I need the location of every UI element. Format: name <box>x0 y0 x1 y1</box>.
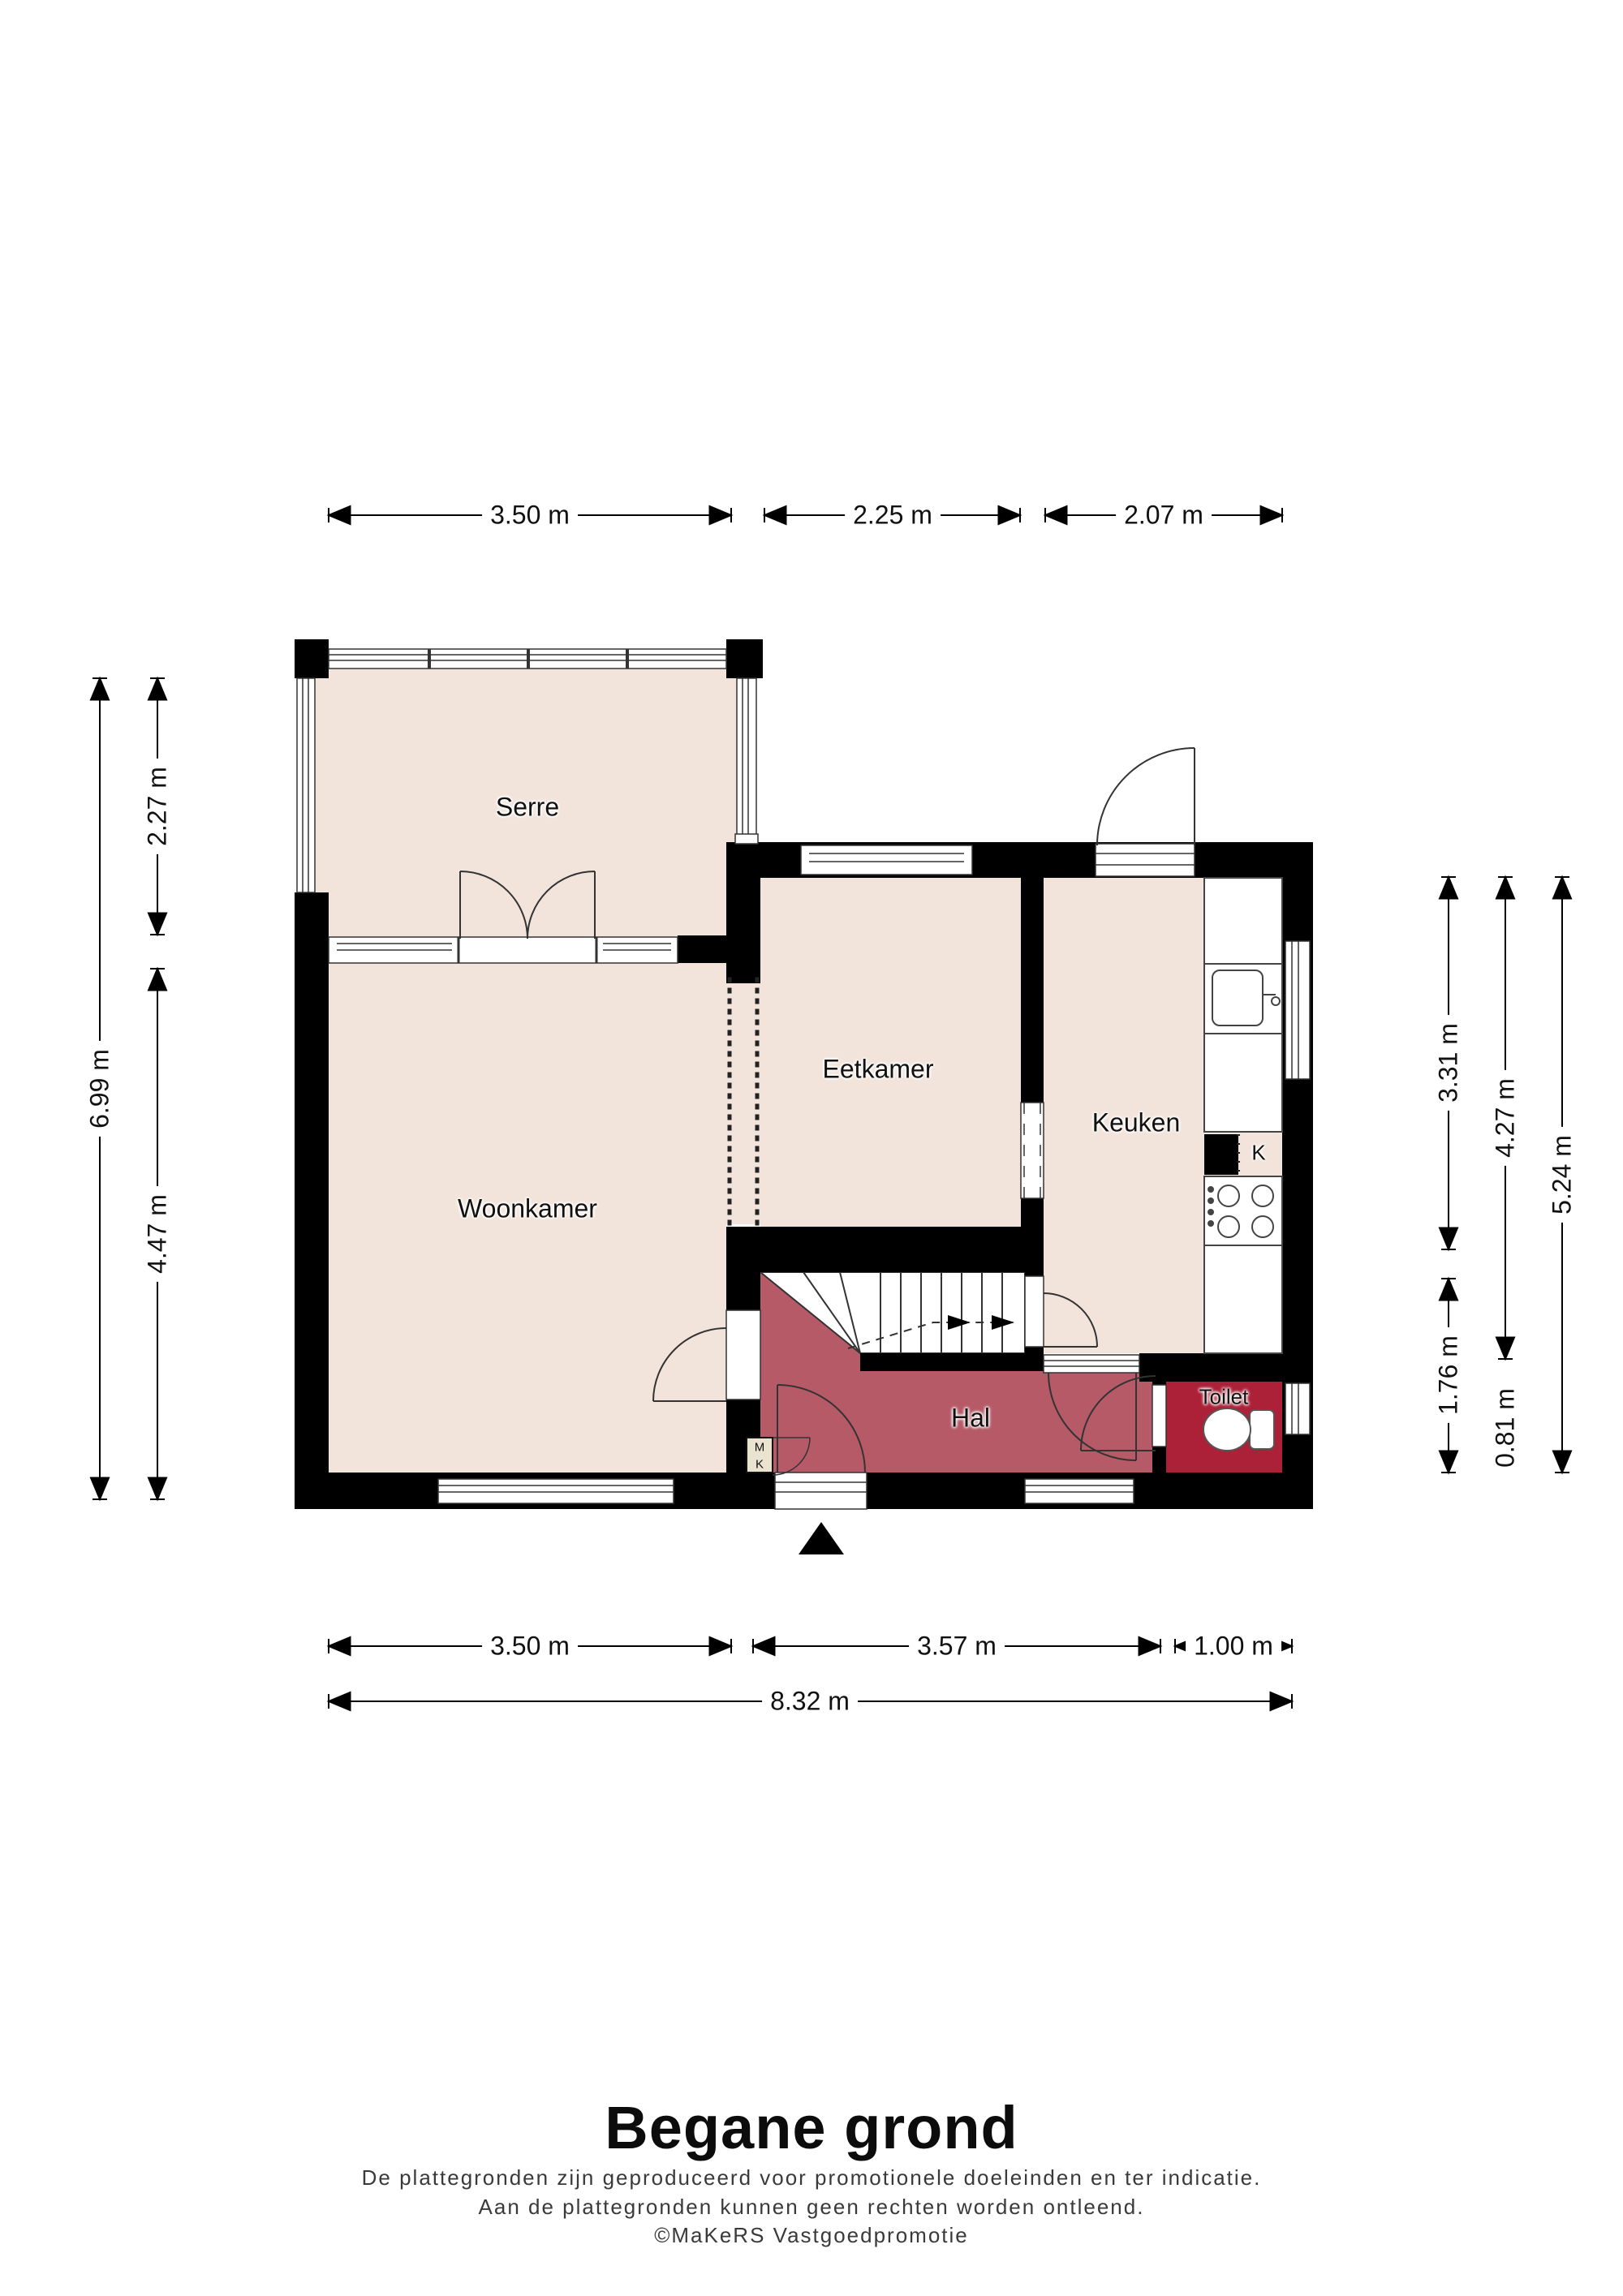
counter <box>1204 878 1282 964</box>
keuken-side-window <box>1285 941 1310 1079</box>
front-doorway <box>775 1473 867 1509</box>
page-title: Begane grond <box>0 2093 1623 2162</box>
dim-left-1: 2.27 m <box>143 759 171 854</box>
kitchen-fixtures <box>1204 878 1282 1353</box>
room-label-keuken: Keuken <box>1092 1108 1181 1138</box>
sink-icon <box>1212 970 1263 1025</box>
entrance-arrow-icon <box>799 1522 844 1554</box>
room-label-serre: Serre <box>496 793 559 823</box>
hal-keuken-partition-window <box>1044 1355 1139 1373</box>
room-label-toilet: Toilet <box>1199 1385 1249 1410</box>
stove-icon <box>1204 1176 1282 1245</box>
dim-right-4: 0.81 m <box>1491 1380 1519 1476</box>
stair-doorway <box>1025 1276 1044 1347</box>
eetkamer-floor <box>760 878 1021 1227</box>
dim-total-width: 8.32 m <box>762 1687 858 1715</box>
dim-top-3: 2.07 m <box>1116 501 1212 529</box>
woonkamer-bottom-window <box>438 1479 674 1503</box>
toilet-doorway <box>1152 1385 1166 1447</box>
meterkast-label-m: M <box>755 1441 765 1455</box>
meterkast-label-k: K <box>756 1458 764 1472</box>
keuken-back-door-icon <box>1097 748 1195 845</box>
disclaimer-line-2: Aan de plattegronden kunnen geen rechten… <box>0 2195 1623 2221</box>
dim-top-1: 3.50 m <box>482 501 578 529</box>
woonkamer-doorway <box>726 1310 760 1400</box>
dim-left-3: 6.99 m <box>85 1041 114 1137</box>
dim-bottom-3: 1.00 m <box>1186 1632 1281 1660</box>
dim-left-2: 4.47 m <box>143 1186 171 1282</box>
keuken-back-doorway <box>1096 844 1195 876</box>
floorplan-page: Serre Woonkamer Eetkamer Keuken Hal Toil… <box>0 0 1623 2296</box>
dim-right-5: 5.24 m <box>1548 1127 1576 1223</box>
room-label-kast: K <box>1251 1141 1265 1166</box>
counter <box>1204 1245 1282 1353</box>
wc-icon <box>1203 1408 1274 1451</box>
dim-bottom-2: 3.57 m <box>909 1632 1005 1660</box>
dim-bottom-1: 3.50 m <box>482 1632 578 1660</box>
room-label-eetkamer: Eetkamer <box>823 1055 934 1085</box>
floor-plan-drawing <box>0 0 1623 2296</box>
hal-bottom-window <box>1025 1479 1134 1503</box>
serre-right-window <box>737 678 756 844</box>
serre-left-window <box>297 678 315 892</box>
room-label-woonkamer: Woonkamer <box>458 1194 597 1224</box>
caption-block: Begane grond De plattegronden zijn gepro… <box>0 2093 1623 2249</box>
eetkamer-top-window <box>801 845 972 875</box>
copyright-line: ©MaKeRS Vastgoedpromotie <box>0 2223 1623 2249</box>
toilet-window <box>1285 1383 1310 1434</box>
counter <box>1204 1034 1282 1132</box>
dim-right-2: 1.76 m <box>1434 1327 1462 1423</box>
room-floors <box>315 669 1282 1473</box>
floor-plan: Serre Woonkamer Eetkamer Keuken Hal Toil… <box>0 0 1623 2296</box>
dim-right-3: 4.27 m <box>1491 1070 1519 1166</box>
opening-floor <box>726 979 760 1224</box>
dim-right-1: 3.31 m <box>1434 1015 1462 1111</box>
dim-top-2: 2.25 m <box>845 501 941 529</box>
disclaimer-line-1: De plattegronden zijn geproduceerd voor … <box>0 2165 1623 2191</box>
room-label-hal: Hal <box>951 1404 990 1434</box>
